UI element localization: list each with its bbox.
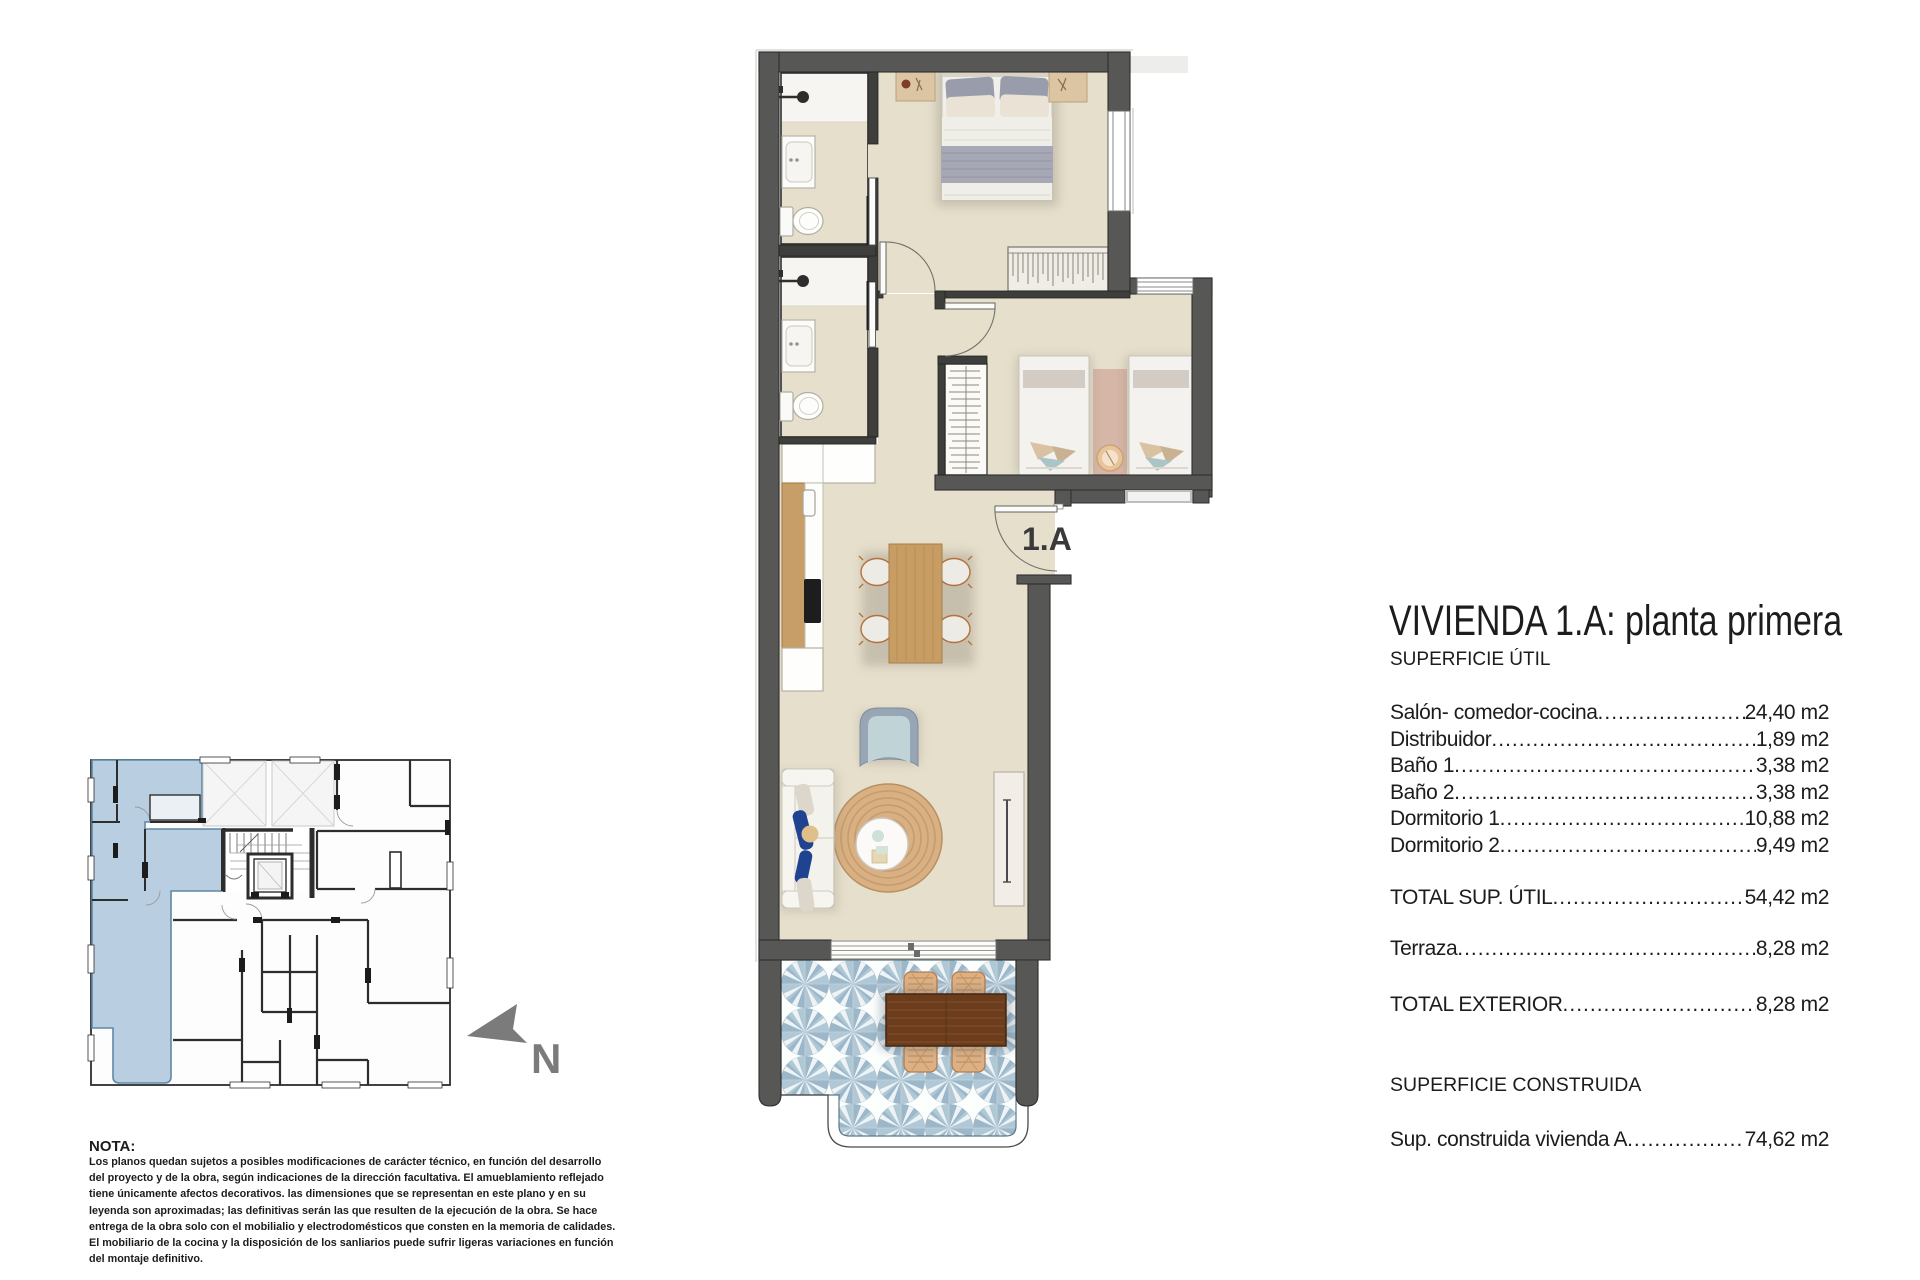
svg-text:N: N bbox=[531, 1035, 561, 1082]
svg-text:1.A: 1.A bbox=[1022, 521, 1072, 557]
